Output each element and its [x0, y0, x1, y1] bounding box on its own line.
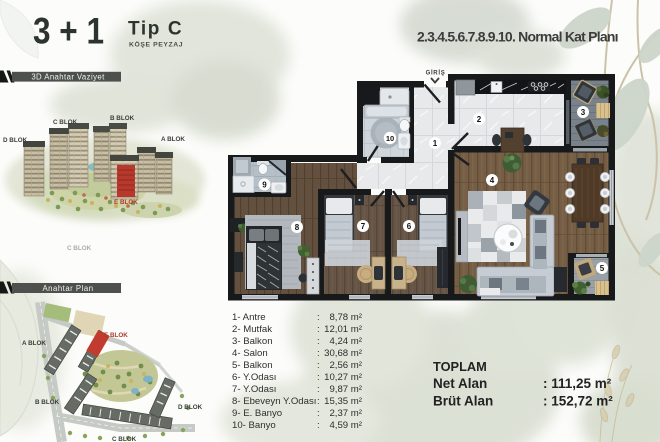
- svg-text:A BLOK: A BLOK: [22, 340, 46, 347]
- svg-text:Brüt Alan: Brüt Alan: [433, 394, 493, 409]
- svg-text:3 + 1: 3 + 1: [33, 11, 104, 52]
- svg-text:2,37 m²: 2,37 m²: [329, 408, 362, 419]
- svg-text:4,59 m²: 4,59 m²: [329, 420, 362, 431]
- svg-text:7- Y.Odası: 7- Y.Odası: [232, 384, 276, 395]
- svg-text::: :: [317, 420, 320, 431]
- svg-text:4,24 m²: 4,24 m²: [329, 336, 362, 347]
- svg-text::: :: [317, 336, 320, 347]
- svg-text:3- Balkon: 3- Balkon: [232, 336, 273, 347]
- svg-text::: :: [317, 396, 320, 407]
- svg-text:5: 5: [600, 264, 605, 273]
- svg-text:C BLOK: C BLOK: [112, 436, 137, 442]
- svg-text:Tip C: Tip C: [128, 19, 183, 40]
- svg-text:5- Balkon: 5- Balkon: [232, 360, 273, 371]
- svg-text:3: 3: [581, 108, 586, 117]
- svg-text:Anahtar Plan: Anahtar Plan: [42, 284, 93, 293]
- svg-text:: 152,72 m²: : 152,72 m²: [543, 394, 613, 409]
- svg-text:4: 4: [490, 176, 495, 185]
- svg-text:12,01 m²: 12,01 m²: [324, 324, 363, 335]
- svg-text:10- Banyo: 10- Banyo: [232, 420, 276, 431]
- svg-text:8,78 m²: 8,78 m²: [329, 312, 362, 323]
- svg-text:TOPLAM: TOPLAM: [433, 359, 487, 374]
- svg-text:1- Antre: 1- Antre: [232, 312, 266, 323]
- svg-text:15,35 m²: 15,35 m²: [324, 396, 363, 407]
- svg-text::: :: [317, 324, 320, 335]
- svg-text:10,27 m²: 10,27 m²: [324, 372, 363, 383]
- svg-text:6: 6: [407, 222, 412, 231]
- svg-text:9: 9: [262, 181, 267, 190]
- svg-text:B BLOK: B BLOK: [35, 399, 60, 406]
- svg-text:4- Salon: 4- Salon: [232, 348, 268, 359]
- svg-text:6- Y.Odası: 6- Y.Odası: [232, 372, 276, 383]
- svg-text:GİRİŞ: GİRİŞ: [426, 70, 446, 77]
- svg-text:10: 10: [386, 134, 394, 143]
- svg-text::: :: [317, 384, 320, 395]
- svg-text:KÖŞE PEYZAJ: KÖŞE PEYZAJ: [129, 40, 183, 49]
- svg-text:B BLOK: B BLOK: [110, 115, 135, 122]
- svg-text:30,68 m²: 30,68 m²: [324, 348, 363, 359]
- svg-text:8- Ebeveyn Y.Odası: 8- Ebeveyn Y.Odası: [232, 396, 316, 407]
- svg-text:8: 8: [295, 223, 300, 232]
- svg-text::: :: [317, 348, 320, 359]
- svg-text:9,87 m²: 9,87 m²: [329, 384, 362, 395]
- svg-text:E BLOK: E BLOK: [104, 332, 128, 339]
- svg-text:: 111,25 m²: : 111,25 m²: [543, 376, 612, 391]
- svg-text::: :: [317, 360, 320, 371]
- svg-text:C BLOK: C BLOK: [53, 119, 78, 126]
- svg-text:2.3.4.5.6.7.8.9.10. Normal Kat: 2.3.4.5.6.7.8.9.10. Normal Kat Planı: [417, 29, 618, 45]
- svg-text::: :: [317, 372, 320, 383]
- svg-text:Net Alan: Net Alan: [433, 376, 487, 391]
- svg-text:1: 1: [433, 139, 438, 148]
- svg-text:9- E. Banyo: 9- E. Banyo: [232, 408, 282, 419]
- svg-text:3D Anahtar Vaziyet: 3D Anahtar Vaziyet: [31, 73, 105, 82]
- svg-text::: :: [317, 312, 320, 323]
- svg-text:2- Mutfak: 2- Mutfak: [232, 324, 272, 335]
- svg-text::: :: [317, 408, 320, 419]
- svg-text:D BLOK: D BLOK: [3, 137, 28, 144]
- svg-text:D BLOK: D BLOK: [178, 404, 203, 411]
- svg-text:C BLOK: C BLOK: [67, 245, 92, 252]
- svg-text:A BLOK: A BLOK: [161, 136, 185, 143]
- svg-text:2,56 m²: 2,56 m²: [329, 360, 362, 371]
- svg-text:E BLOK: E BLOK: [114, 199, 138, 206]
- svg-text:2: 2: [477, 115, 482, 124]
- svg-text:7: 7: [361, 222, 366, 231]
